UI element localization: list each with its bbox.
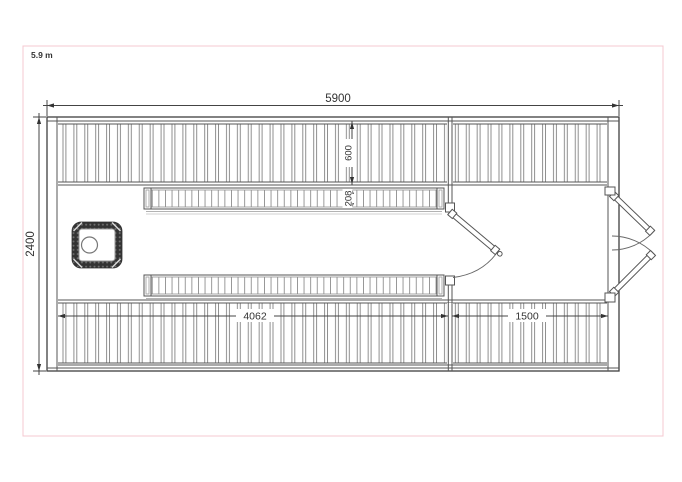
dimension-overall-width: 5900 — [43, 93, 623, 116]
sauna-heater — [72, 222, 122, 268]
door-jamb — [605, 187, 615, 195]
cad-viewport: 5.9 m — [0, 0, 682, 482]
bench-end-cap — [144, 188, 151, 209]
dim-text-4062: 4062 — [243, 311, 267, 323]
door-jamb — [605, 293, 615, 302]
dim-text-5900: 5900 — [325, 93, 351, 105]
top-deck-slats — [58, 124, 607, 182]
top-deck-band — [58, 124, 607, 185]
dim-text-2400: 2400 — [25, 231, 37, 257]
heater-chimney-circle — [82, 237, 98, 253]
dimension-bench-depth: 208 — [343, 188, 355, 209]
dim-text-208: 208 — [344, 191, 355, 207]
dim-text-600: 600 — [344, 145, 355, 161]
dim-text-1500: 1500 — [515, 311, 539, 323]
dimension-overall-depth: 2400 — [25, 113, 46, 375]
floorplan-drawing: 5.9 m — [0, 0, 682, 482]
bench-end-cap — [437, 275, 444, 296]
bench-end-cap — [144, 275, 151, 296]
scale-annotation: 5.9 m — [31, 50, 53, 60]
lower-bench — [144, 275, 444, 299]
bench-end-cap — [437, 188, 444, 209]
